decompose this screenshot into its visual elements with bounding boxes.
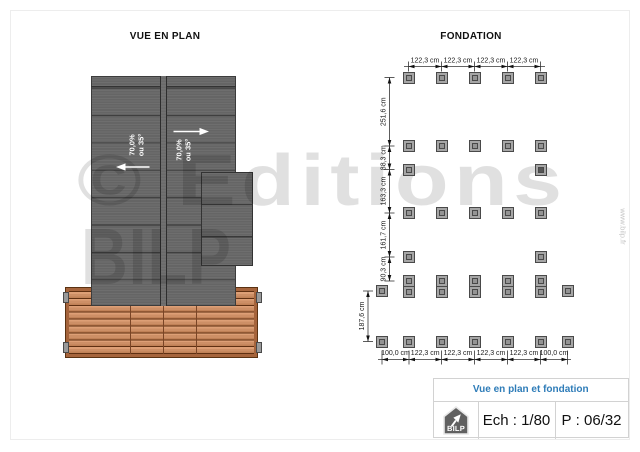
svg-text:122,3 cm: 122,3 cm [444, 58, 473, 65]
svg-text:122,3 cm: 122,3 cm [411, 58, 440, 65]
svg-text:251,6 cm: 251,6 cm [381, 97, 388, 126]
svg-text:163,3 cm: 163,3 cm [381, 176, 388, 205]
svg-text:90,3 cm: 90,3 cm [381, 256, 388, 281]
svg-text:122,3 cm: 122,3 cm [477, 350, 506, 357]
svg-text:100,0 cm: 100,0 cm [381, 350, 410, 357]
svg-text:122,3 cm: 122,3 cm [444, 350, 473, 357]
svg-text:122,3 cm: 122,3 cm [510, 58, 539, 65]
svg-text:187,6 cm: 187,6 cm [359, 301, 366, 330]
svg-text:122,3 cm: 122,3 cm [477, 58, 506, 65]
svg-text:122,3 cm: 122,3 cm [411, 350, 440, 357]
svg-text:122,3 cm: 122,3 cm [510, 350, 539, 357]
svg-text:100,0 cm: 100,0 cm [540, 350, 569, 357]
svg-text:88,3 cm: 88,3 cm [381, 145, 388, 170]
svg-text:161,7 cm: 161,7 cm [381, 220, 388, 249]
